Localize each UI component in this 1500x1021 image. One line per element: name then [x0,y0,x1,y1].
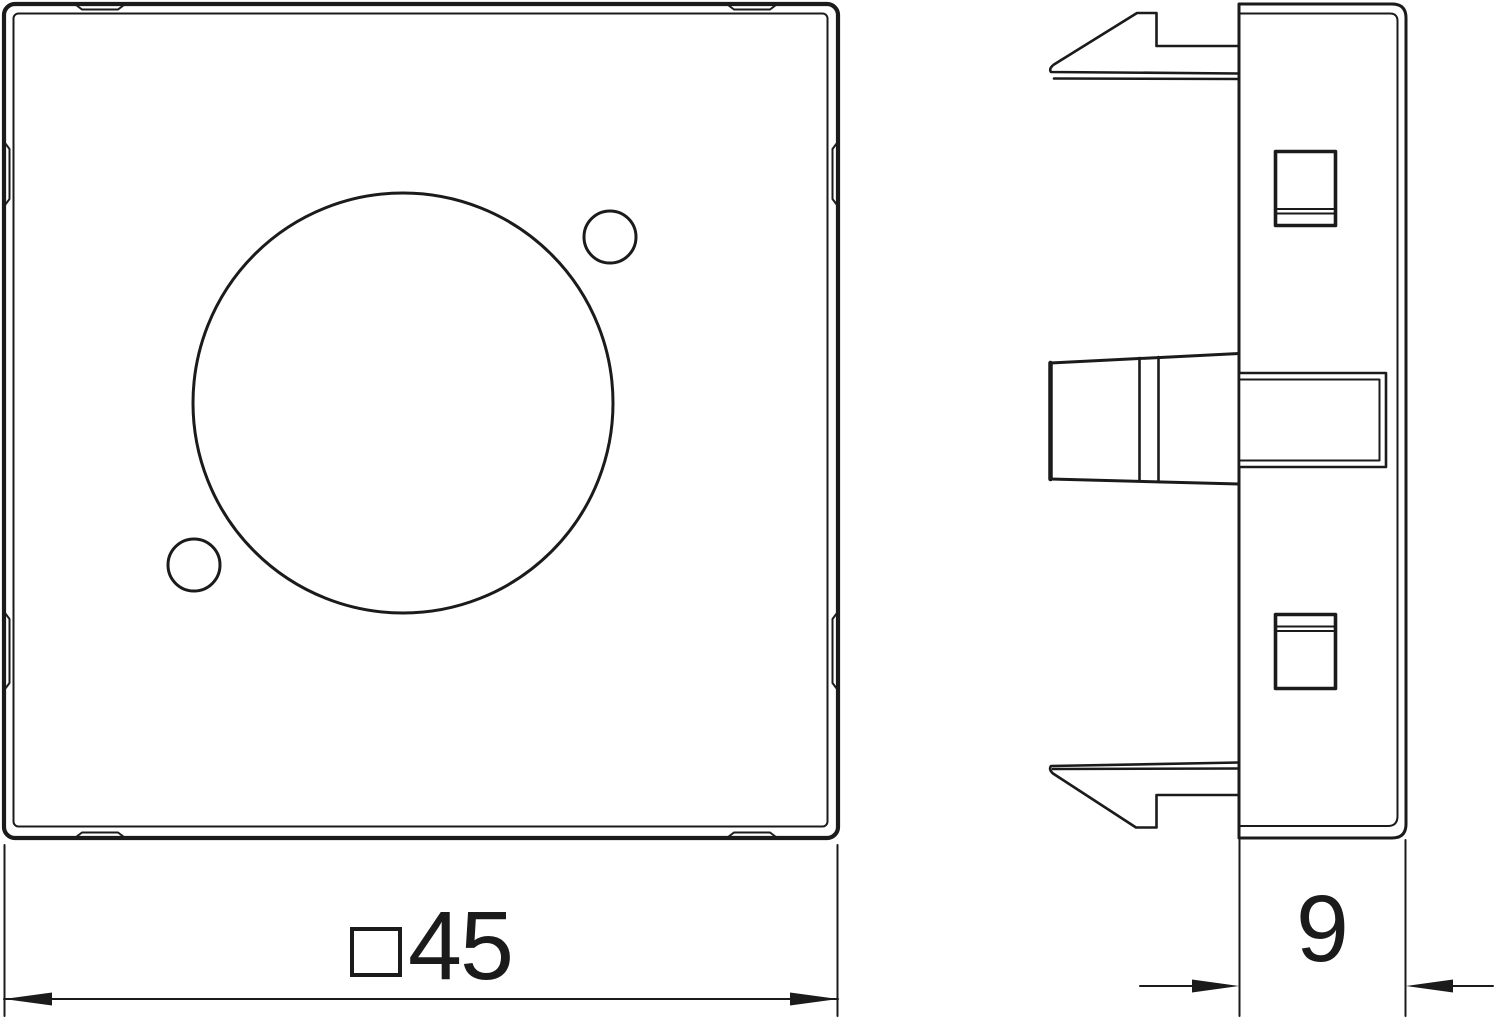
arrowhead-right [1406,980,1453,993]
center-latch [1051,354,1240,485]
square-symbol-icon [350,927,402,977]
bottom-latch-hook [1050,763,1239,828]
drawing-svg [0,0,1500,1021]
plate-inner-edge [14,14,828,827]
top-latch-hook [1050,13,1239,74]
front-view [4,4,838,838]
arrowhead-right [790,993,838,1006]
center-boss [1239,373,1386,467]
plate-outer-edge [4,4,838,838]
arrowhead-left [1192,980,1239,993]
top-latch-hook-tail [1054,79,1239,80]
connector-cutout-hole [193,193,613,613]
arrowhead-left [4,993,52,1006]
screw-hole-bottom-left [168,539,220,591]
front-width-dimension-value: 45 [408,897,512,994]
side-view [1050,4,1406,838]
side-depth-dimension-value: 9 [1296,882,1347,977]
technical-drawing-canvas: 45 9 [0,0,1500,1021]
bottom-latch-hook-tail [1053,769,1239,770]
screw-hole-top-right [584,211,636,263]
